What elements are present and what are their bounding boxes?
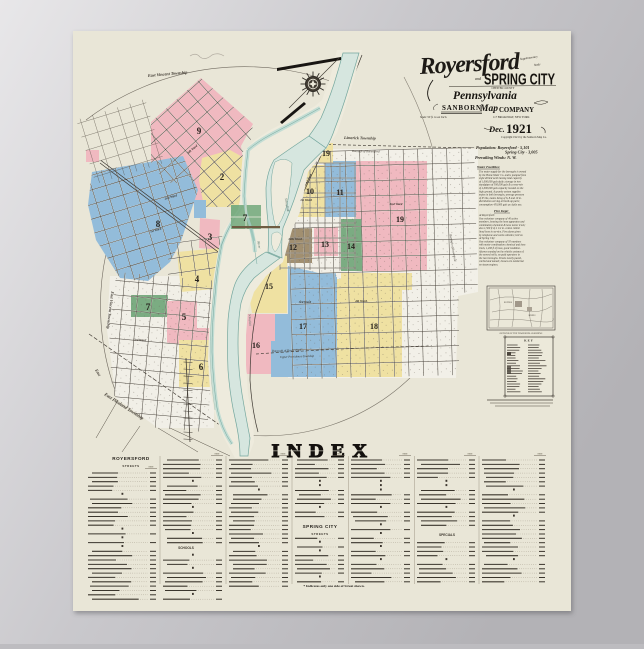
svg-text:4: 4 [195, 274, 200, 284]
svg-text:19: 19 [396, 215, 404, 224]
svg-text:PAGE: PAGE [403, 453, 409, 456]
svg-text:8: 8 [156, 219, 161, 229]
svg-text:6: 6 [199, 362, 204, 372]
svg-text:3rd Ward: 3rd Ward [298, 300, 312, 304]
svg-text:10: 10 [306, 187, 314, 196]
svg-text:Water Facilities:: Water Facilities: [477, 165, 500, 169]
svg-text:INDEX: INDEX [272, 442, 375, 462]
svg-text:KEY: KEY [524, 339, 534, 343]
svg-text:4th Ward: 4th Ward [354, 299, 367, 303]
svg-text:18: 18 [370, 322, 378, 331]
svg-text:1st Ward: 1st Ward [300, 198, 312, 202]
svg-text:Pennsylvania: Pennsylvania [453, 90, 517, 102]
svg-text:* Indicates only one side of S: * Indicates only one side of Street show… [303, 584, 364, 588]
svg-text:5: 5 [182, 312, 187, 322]
svg-text:PAGE: PAGE [215, 453, 221, 456]
svg-text:16: 16 [252, 341, 260, 350]
svg-text:Copyright 1921 by the Sanborn: Copyright 1921 by the Sanborn Map Co. [501, 136, 547, 139]
svg-text:9: 9 [197, 126, 202, 136]
svg-text:12th Ward: 12th Ward [288, 237, 302, 241]
svg-text:2: 2 [220, 172, 225, 182]
svg-text:Fire Dept:: Fire Dept: [494, 209, 509, 213]
svg-text:ROYERS: ROYERS [504, 302, 512, 304]
svg-text:OUTLINE OF THE TOWNSHIPS ADJOI: OUTLINE OF THE TOWNSHIPS ADJOINING [500, 332, 543, 335]
svg-text:7: 7 [146, 302, 151, 312]
svg-text:13: 13 [321, 240, 329, 249]
svg-text:12: 12 [289, 243, 297, 252]
svg-text:1921: 1921 [506, 121, 532, 136]
svg-text:Borough of Royersford: Borough of Royersford [352, 149, 380, 153]
svg-text:PAGE: PAGE [538, 453, 544, 456]
svg-text:3rd Ward: 3rd Ward [133, 338, 147, 343]
svg-text:Spring City - 3,005: Spring City - 3,005 [505, 150, 538, 155]
svg-text:17: 17 [299, 322, 307, 331]
svg-text:14: 14 [347, 242, 355, 251]
svg-text:SPRING: SPRING [528, 315, 536, 317]
svg-text:ROYERSFORD: ROYERSFORD [112, 456, 150, 461]
svg-text:Schuylkill: Schuylkill [248, 314, 252, 326]
svg-text:3: 3 [208, 232, 213, 242]
svg-text:11: 11 [336, 188, 344, 197]
svg-text:PAGE: PAGE [149, 466, 155, 469]
svg-text:PAGE: PAGE [337, 453, 343, 456]
svg-text:Prevailing Winds: N. W.: Prevailing Winds: N. W. [475, 155, 517, 160]
svg-text:and: and [475, 76, 482, 81]
svg-text:consumption 450,000 gals av. d: consumption 450,000 gals av. daily use. [479, 204, 522, 207]
svg-text:7: 7 [243, 213, 248, 223]
svg-text:SPECIALS: SPECIALS [439, 533, 455, 537]
svg-text:PAGE: PAGE [468, 453, 474, 456]
svg-text:SCHOOLS: SCHOOLS [178, 546, 194, 550]
svg-text:SPRING CITY: SPRING CITY [303, 524, 338, 529]
svg-text:STREETS: STREETS [311, 532, 328, 536]
svg-text:SANBORN: SANBORN [442, 104, 482, 112]
svg-text:no steam engines.: no steam engines. [479, 264, 499, 267]
svg-text:Map: Map [479, 104, 498, 114]
svg-text:PAGE: PAGE [281, 453, 287, 456]
svg-text:STREETS: STREETS [122, 464, 139, 468]
svg-text:Limerick Township: Limerick Township [343, 135, 376, 141]
svg-text:117 BROADWAY, NEW YORK: 117 BROADWAY, NEW YORK [493, 116, 530, 119]
svg-text:COMPANY: COMPANY [499, 107, 534, 114]
svg-text:2nd Ward: 2nd Ward [389, 202, 403, 206]
svg-text:Scale 50 ft. to an Inch.: Scale 50 ft. to an Inch. [420, 115, 447, 119]
svg-text:19: 19 [322, 149, 330, 158]
svg-text:15: 15 [265, 282, 273, 291]
